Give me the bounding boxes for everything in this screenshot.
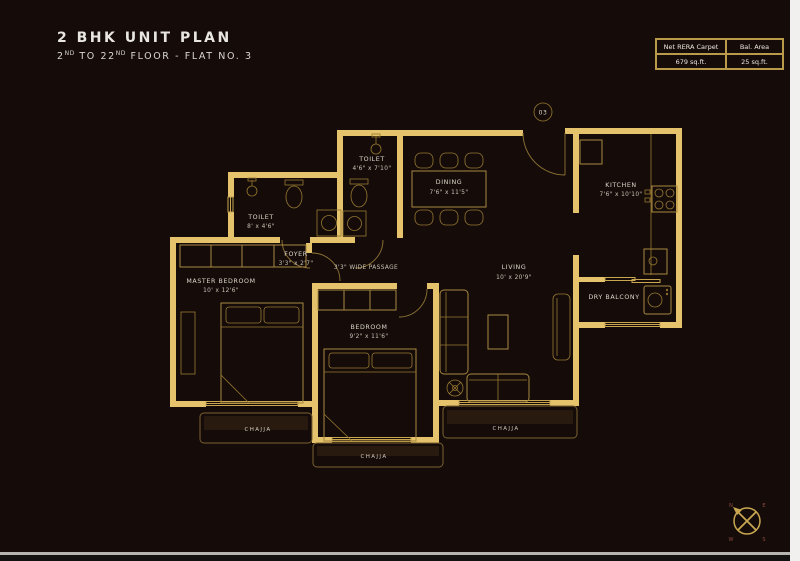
room-label-living: LIVING [502,264,527,271]
label-chajja-center: CHAJJA [360,454,387,460]
dry-balcony-fixtures [644,286,671,314]
door-arc-entry [523,133,565,175]
compass-e: E [762,503,765,509]
room-dims-common-toilet: 4'6" x 7'10" [353,166,392,172]
kitchen-sink-icon [644,249,667,274]
room-dims-living: 10' x 20'9" [496,275,532,281]
window [228,197,233,212]
room-dims-master-bedroom: 10' x 12'6" [203,288,239,294]
compass-s: S [762,537,765,543]
chajja-projections [200,406,577,467]
chair-icon [465,153,483,168]
plant-icon [447,380,463,396]
room-label-bedroom: BEDROOM [350,324,387,331]
floor-plan-drawing: TOILET 4'6" x 7'10" TOILET 8' x 4'6" DIN… [0,0,800,561]
bed-icon [221,303,303,403]
washbasin-icon [343,211,366,236]
floor-plan-page: 2 BHK UNIT PLAN 2ND TO 22ND FLOOR - FLAT… [0,0,800,561]
room-label-foyer: FOYER [284,251,307,258]
room-label-master-toilet: TOILET [247,214,274,221]
kitchen-cabinet-icon [580,140,602,164]
shower-icon [247,178,257,196]
room-label-dry-balcony: DRY BALCONY [588,294,639,301]
compass-n: N [729,503,733,509]
label-passage: 3'3" WIDE PASSAGE [334,265,398,271]
sliding-door [605,278,660,283]
bed-icon [324,349,416,441]
chair-icon [440,210,458,225]
chair-icon [415,210,433,225]
bottom-footer-band [0,555,790,561]
room-dims-kitchen: 7'6" x 10'10" [600,192,643,198]
sofa-icon [440,290,468,374]
room-dims-dining: 7'6" x 11'5" [430,190,469,196]
chair-icon [465,210,483,225]
compass-icon: N E W S [729,503,766,543]
washing-machine-icon [644,286,671,314]
door-arc-bedroom [399,289,427,317]
living-furniture [440,290,570,402]
label-chajja-left: CHAJJA [244,427,271,433]
door-arc-common-toilet [355,240,383,268]
bedroom-furniture [318,290,416,441]
room-dims-master-toilet: 8' x 4'6" [247,224,275,230]
compass-w: W [729,537,734,543]
right-border-strip [790,0,800,561]
window [605,323,660,327]
chajja-slab [447,410,573,424]
sofa-icon [467,374,529,402]
flat-number-badge: 03 [534,103,552,121]
room-dims-foyer: 3'3" x 2'7" [279,261,314,267]
walls [170,128,682,443]
kitchen-fixtures [580,134,677,275]
room-label-master-bedroom: MASTER BEDROOM [186,278,255,285]
room-label-common-toilet: TOILET [358,156,385,163]
dining-table-icon [412,171,486,207]
room-label-dining: DINING [436,179,462,186]
stove-icon [645,186,677,212]
room-label-kitchen: KITCHEN [605,182,636,189]
coffee-table-icon [488,315,508,349]
shower-icon [371,134,381,154]
room-dims-bedroom: 9'2" x 11'6" [350,334,389,340]
toilet-icon [350,179,368,207]
flat-number: 03 [539,110,548,117]
side-table-icon [181,312,195,374]
tv-unit-icon [553,294,570,360]
toilet-icon [285,180,303,208]
chair-icon [415,153,433,168]
label-chajja-right: CHAJJA [492,426,519,432]
wardrobe-icon [318,290,396,310]
dining-furniture [412,153,486,225]
master-bedroom-furniture [180,245,306,403]
chair-icon [440,153,458,168]
common-toilet-fixtures [343,134,381,236]
